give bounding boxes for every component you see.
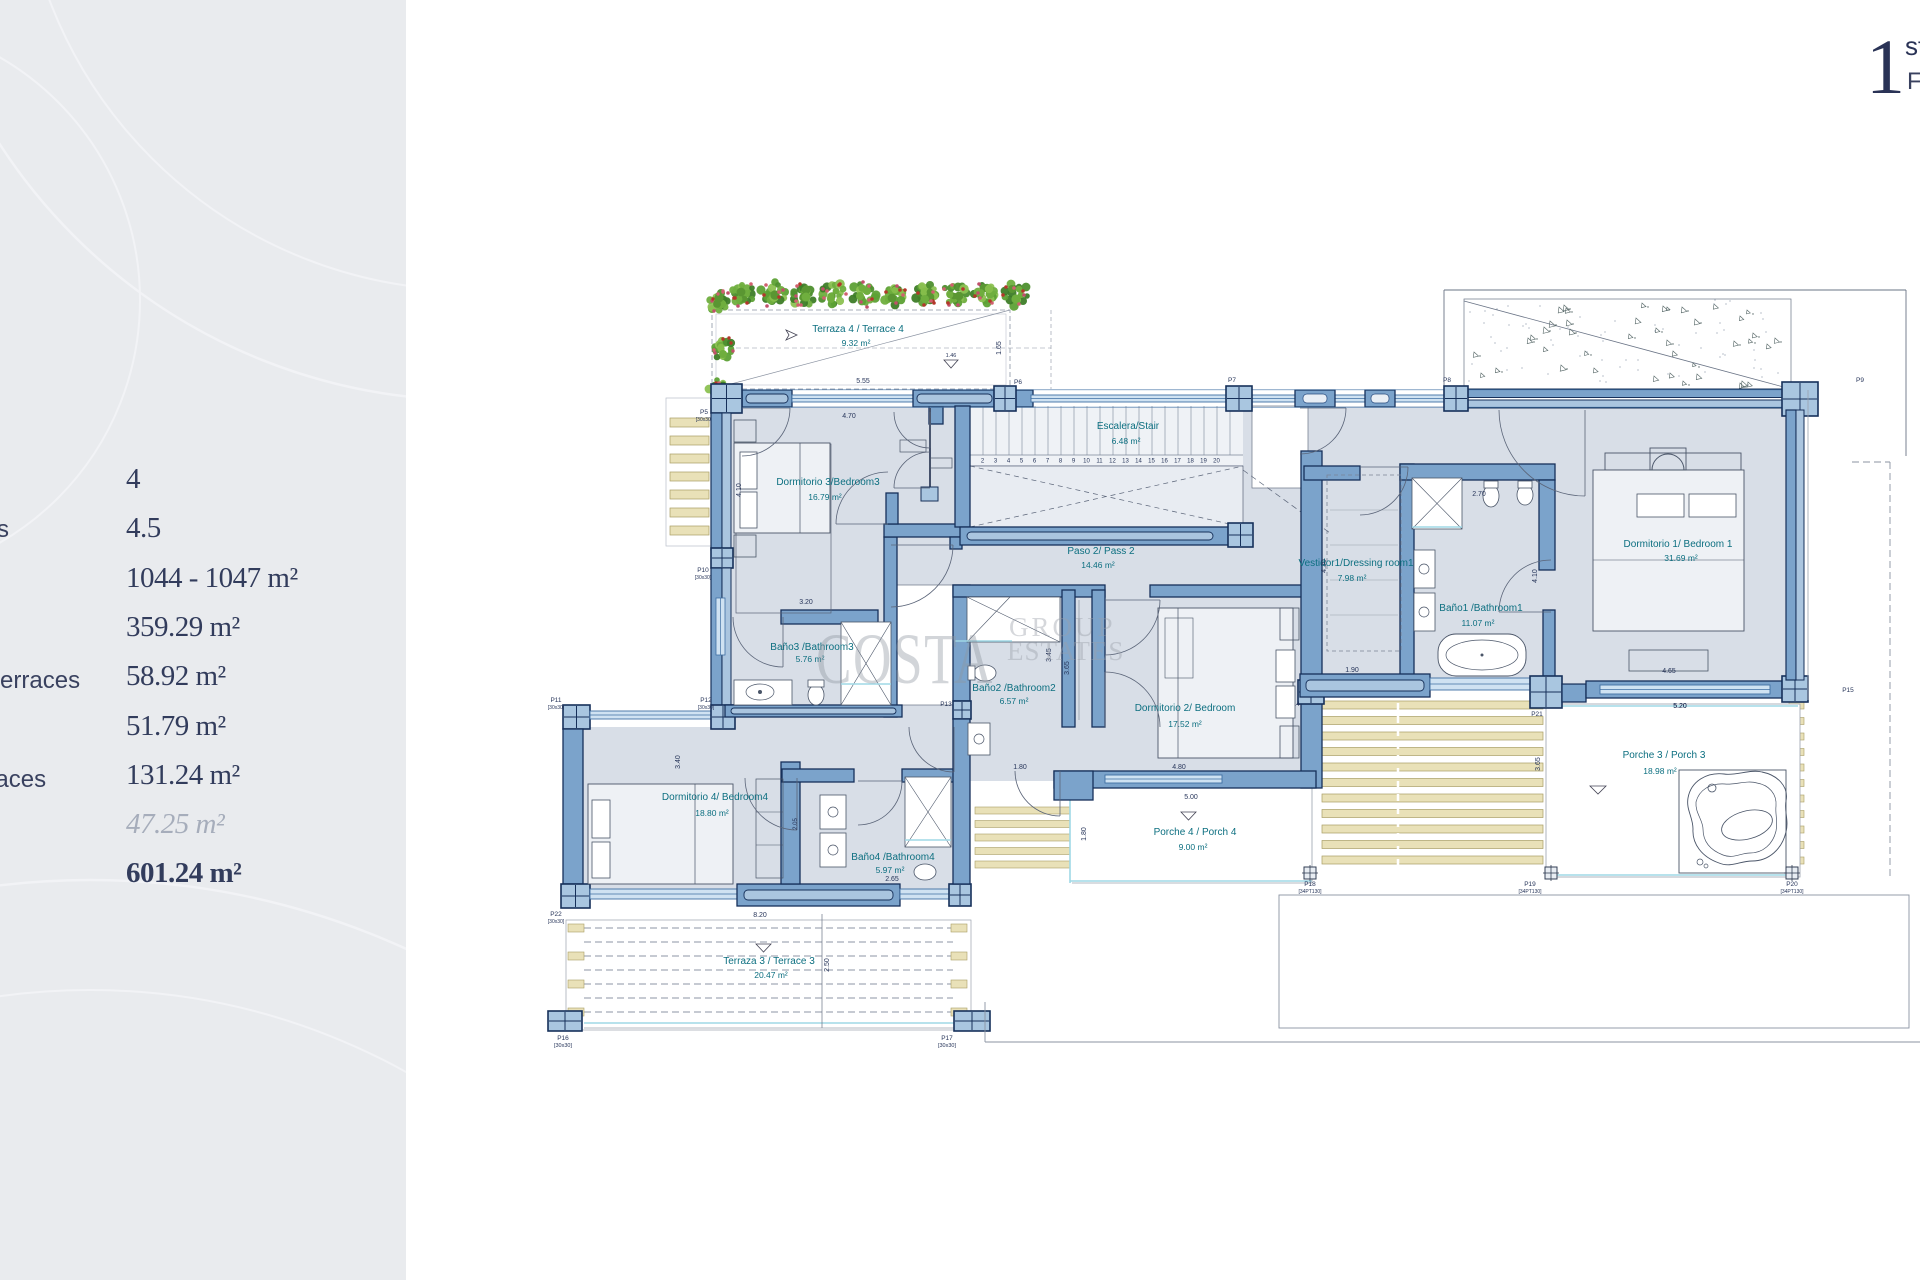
svg-text:2.50: 2.50 <box>824 958 831 972</box>
svg-text:P13: P13 <box>940 701 952 708</box>
svg-text:8.20: 8.20 <box>753 912 767 919</box>
svg-text:P9: P9 <box>1856 377 1864 384</box>
svg-text:P12: P12 <box>700 697 712 704</box>
svg-text:P6: P6 <box>1014 379 1022 386</box>
svg-text:9.32 m²: 9.32 m² <box>842 338 871 348</box>
svg-text:4.65: 4.65 <box>1662 668 1676 675</box>
svg-text:20.47 m²: 20.47 m² <box>754 970 788 980</box>
svg-text:P18: P18 <box>1304 881 1316 888</box>
svg-text:Baño4 /Bathroom4: Baño4 /Bathroom4 <box>851 852 935 863</box>
svg-text:P19: P19 <box>1524 881 1536 888</box>
svg-text:31.69 m²: 31.69 m² <box>1664 553 1698 563</box>
svg-text:[34PT130]: [34PT130] <box>1298 889 1322 895</box>
svg-text:P8: P8 <box>1443 377 1451 384</box>
svg-text:Vestidor1/Dressing room1: Vestidor1/Dressing room1 <box>1298 558 1413 569</box>
svg-text:12: 12 <box>1109 459 1116 465</box>
svg-text:1.80: 1.80 <box>1081 827 1088 841</box>
svg-text:[30x30]: [30x30] <box>695 575 712 581</box>
svg-text:14.46 m²: 14.46 m² <box>1081 560 1115 570</box>
svg-text:[34PT130]: [34PT130] <box>1780 889 1804 895</box>
svg-text:4.70: 4.70 <box>842 413 856 420</box>
svg-text:4.10: 4.10 <box>1532 569 1539 583</box>
svg-text:4.30: 4.30 <box>1321 559 1328 573</box>
svg-text:2.70: 2.70 <box>1472 491 1486 498</box>
svg-text:5.00: 5.00 <box>1184 794 1198 801</box>
svg-text:Terraza 4 / Terrace 4: Terraza 4 / Terrace 4 <box>812 324 904 335</box>
svg-text:16.79 m²: 16.79 m² <box>808 492 842 502</box>
svg-text:19: 19 <box>1200 459 1207 465</box>
svg-text:17: 17 <box>1174 459 1181 465</box>
svg-text:P20: P20 <box>1786 881 1798 888</box>
svg-text:Baño1 /Bathroom1: Baño1 /Bathroom1 <box>1439 603 1523 614</box>
svg-text:[30x30]: [30x30] <box>698 705 715 711</box>
svg-text:15: 15 <box>1148 459 1155 465</box>
svg-text:[30x30]: [30x30] <box>548 705 565 711</box>
svg-text:[30x30]: [30x30] <box>554 1043 573 1049</box>
svg-text:1.90: 1.90 <box>1345 667 1359 674</box>
svg-text:Dormitorio 2/ Bedroom: Dormitorio 2/ Bedroom <box>1135 703 1236 714</box>
svg-text:11.07 m²: 11.07 m² <box>1462 618 1495 628</box>
svg-text:COSTA: COSTA <box>816 619 994 699</box>
svg-text:5.97 m²: 5.97 m² <box>876 865 905 875</box>
svg-text:ESTATES: ESTATES <box>1007 636 1124 666</box>
svg-text:4.80: 4.80 <box>1172 764 1186 771</box>
svg-text:[30x30]: [30x30] <box>696 417 713 423</box>
svg-text:10: 10 <box>1083 459 1090 465</box>
svg-text:16: 16 <box>1161 459 1168 465</box>
svg-text:P5: P5 <box>700 409 708 416</box>
svg-text:11: 11 <box>1096 459 1103 465</box>
svg-text:[34PT130]: [34PT130] <box>1518 889 1542 895</box>
svg-text:Terraza 3 / Terrace 3: Terraza 3 / Terrace 3 <box>723 956 815 967</box>
svg-text:20: 20 <box>1213 459 1220 465</box>
svg-text:3.20: 3.20 <box>799 599 813 606</box>
svg-text:6.48 m²: 6.48 m² <box>1112 436 1141 446</box>
svg-text:17.52 m²: 17.52 m² <box>1168 719 1202 729</box>
svg-text:P22: P22 <box>550 911 562 918</box>
svg-text:18.80 m²: 18.80 m² <box>695 808 729 818</box>
svg-text:3.40: 3.40 <box>675 755 682 769</box>
svg-text:13: 13 <box>1122 459 1129 465</box>
svg-text:4.10: 4.10 <box>736 483 743 497</box>
svg-text:P21: P21 <box>1531 711 1543 718</box>
svg-text:2.65: 2.65 <box>885 876 899 883</box>
svg-text:1.80: 1.80 <box>1013 764 1027 771</box>
svg-text:14: 14 <box>1135 459 1142 465</box>
svg-text:[30x30]: [30x30] <box>938 1043 957 1049</box>
svg-text:[30x30]: [30x30] <box>548 919 565 925</box>
svg-text:Escalera/Stair: Escalera/Stair <box>1097 421 1160 432</box>
svg-text:Dormitorio 1/ Bedroom 1: Dormitorio 1/ Bedroom 1 <box>1624 539 1733 550</box>
svg-text:P16: P16 <box>557 1035 569 1042</box>
svg-text:5.20: 5.20 <box>1673 703 1687 710</box>
svg-text:2.05: 2.05 <box>793 818 799 830</box>
svg-text:P7: P7 <box>1228 377 1236 384</box>
svg-text:P11: P11 <box>550 697 561 704</box>
svg-text:Porche 3 / Porch 3: Porche 3 / Porch 3 <box>1623 750 1706 761</box>
svg-text:7.98 m²: 7.98 m² <box>1338 573 1367 583</box>
svg-text:1.65: 1.65 <box>996 341 1003 355</box>
svg-text:Dormitorio 4/ Bedroom4: Dormitorio 4/ Bedroom4 <box>662 792 769 803</box>
svg-text:3.65: 3.65 <box>1535 757 1542 771</box>
svg-text:5.55: 5.55 <box>856 378 870 385</box>
svg-text:Porche 4 / Porch 4: Porche 4 / Porch 4 <box>1154 827 1237 838</box>
svg-text:18: 18 <box>1187 459 1194 465</box>
svg-text:1.46: 1.46 <box>946 353 957 359</box>
svg-text:P17: P17 <box>941 1035 953 1042</box>
svg-text:Paso 2/ Pass 2: Paso 2/ Pass 2 <box>1067 546 1135 557</box>
svg-text:18.98 m²: 18.98 m² <box>1643 766 1677 776</box>
svg-text:6.57 m²: 6.57 m² <box>1000 696 1029 706</box>
svg-text:P15: P15 <box>1842 687 1854 694</box>
svg-text:9.00 m²: 9.00 m² <box>1179 842 1208 852</box>
svg-text:Dormitorio 3/Bedroom3: Dormitorio 3/Bedroom3 <box>776 477 880 488</box>
svg-text:P10: P10 <box>697 567 709 574</box>
